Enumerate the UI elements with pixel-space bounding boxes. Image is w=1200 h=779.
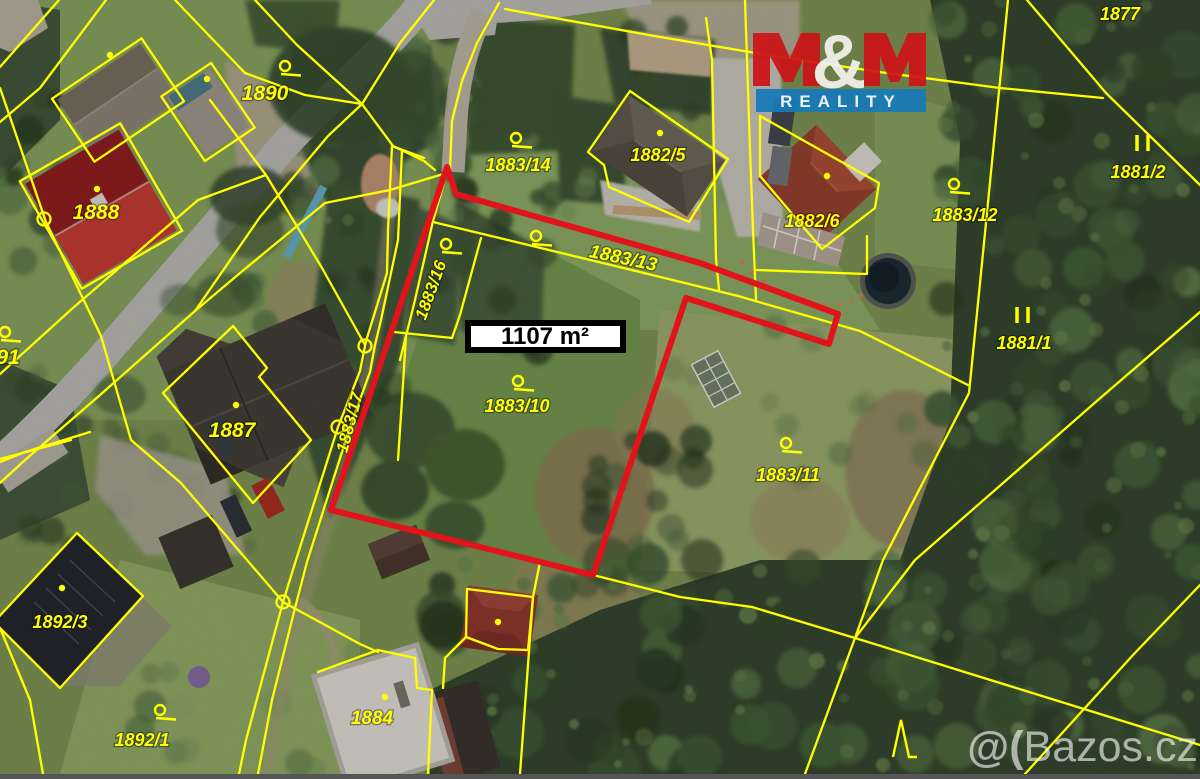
svg-text:91: 91 bbox=[0, 346, 20, 369]
svg-text:1883/10: 1883/10 bbox=[484, 396, 549, 416]
svg-text:1887: 1887 bbox=[209, 419, 257, 442]
svg-text:1883/14: 1883/14 bbox=[485, 155, 550, 175]
svg-text:1881/1: 1881/1 bbox=[996, 333, 1051, 353]
svg-text:1881/2: 1881/2 bbox=[1110, 162, 1165, 182]
svg-text:1883/12: 1883/12 bbox=[932, 205, 997, 225]
svg-text:1892/3: 1892/3 bbox=[32, 612, 87, 632]
svg-text:1882/6: 1882/6 bbox=[784, 211, 840, 231]
svg-text:1884: 1884 bbox=[351, 708, 394, 729]
svg-text:1888: 1888 bbox=[73, 201, 120, 224]
svg-text:1877: 1877 bbox=[1100, 4, 1141, 24]
svg-text:@(Bazos.cz: @(Bazos.cz bbox=[967, 723, 1198, 771]
svg-text:1890: 1890 bbox=[242, 82, 289, 105]
svg-text:1107 m²: 1107 m² bbox=[501, 323, 589, 350]
svg-text:1882/5: 1882/5 bbox=[630, 145, 686, 165]
svg-text:1883/11: 1883/11 bbox=[756, 465, 820, 485]
svg-text:1892/1: 1892/1 bbox=[114, 730, 169, 750]
svg-text:REALITY: REALITY bbox=[780, 92, 902, 111]
